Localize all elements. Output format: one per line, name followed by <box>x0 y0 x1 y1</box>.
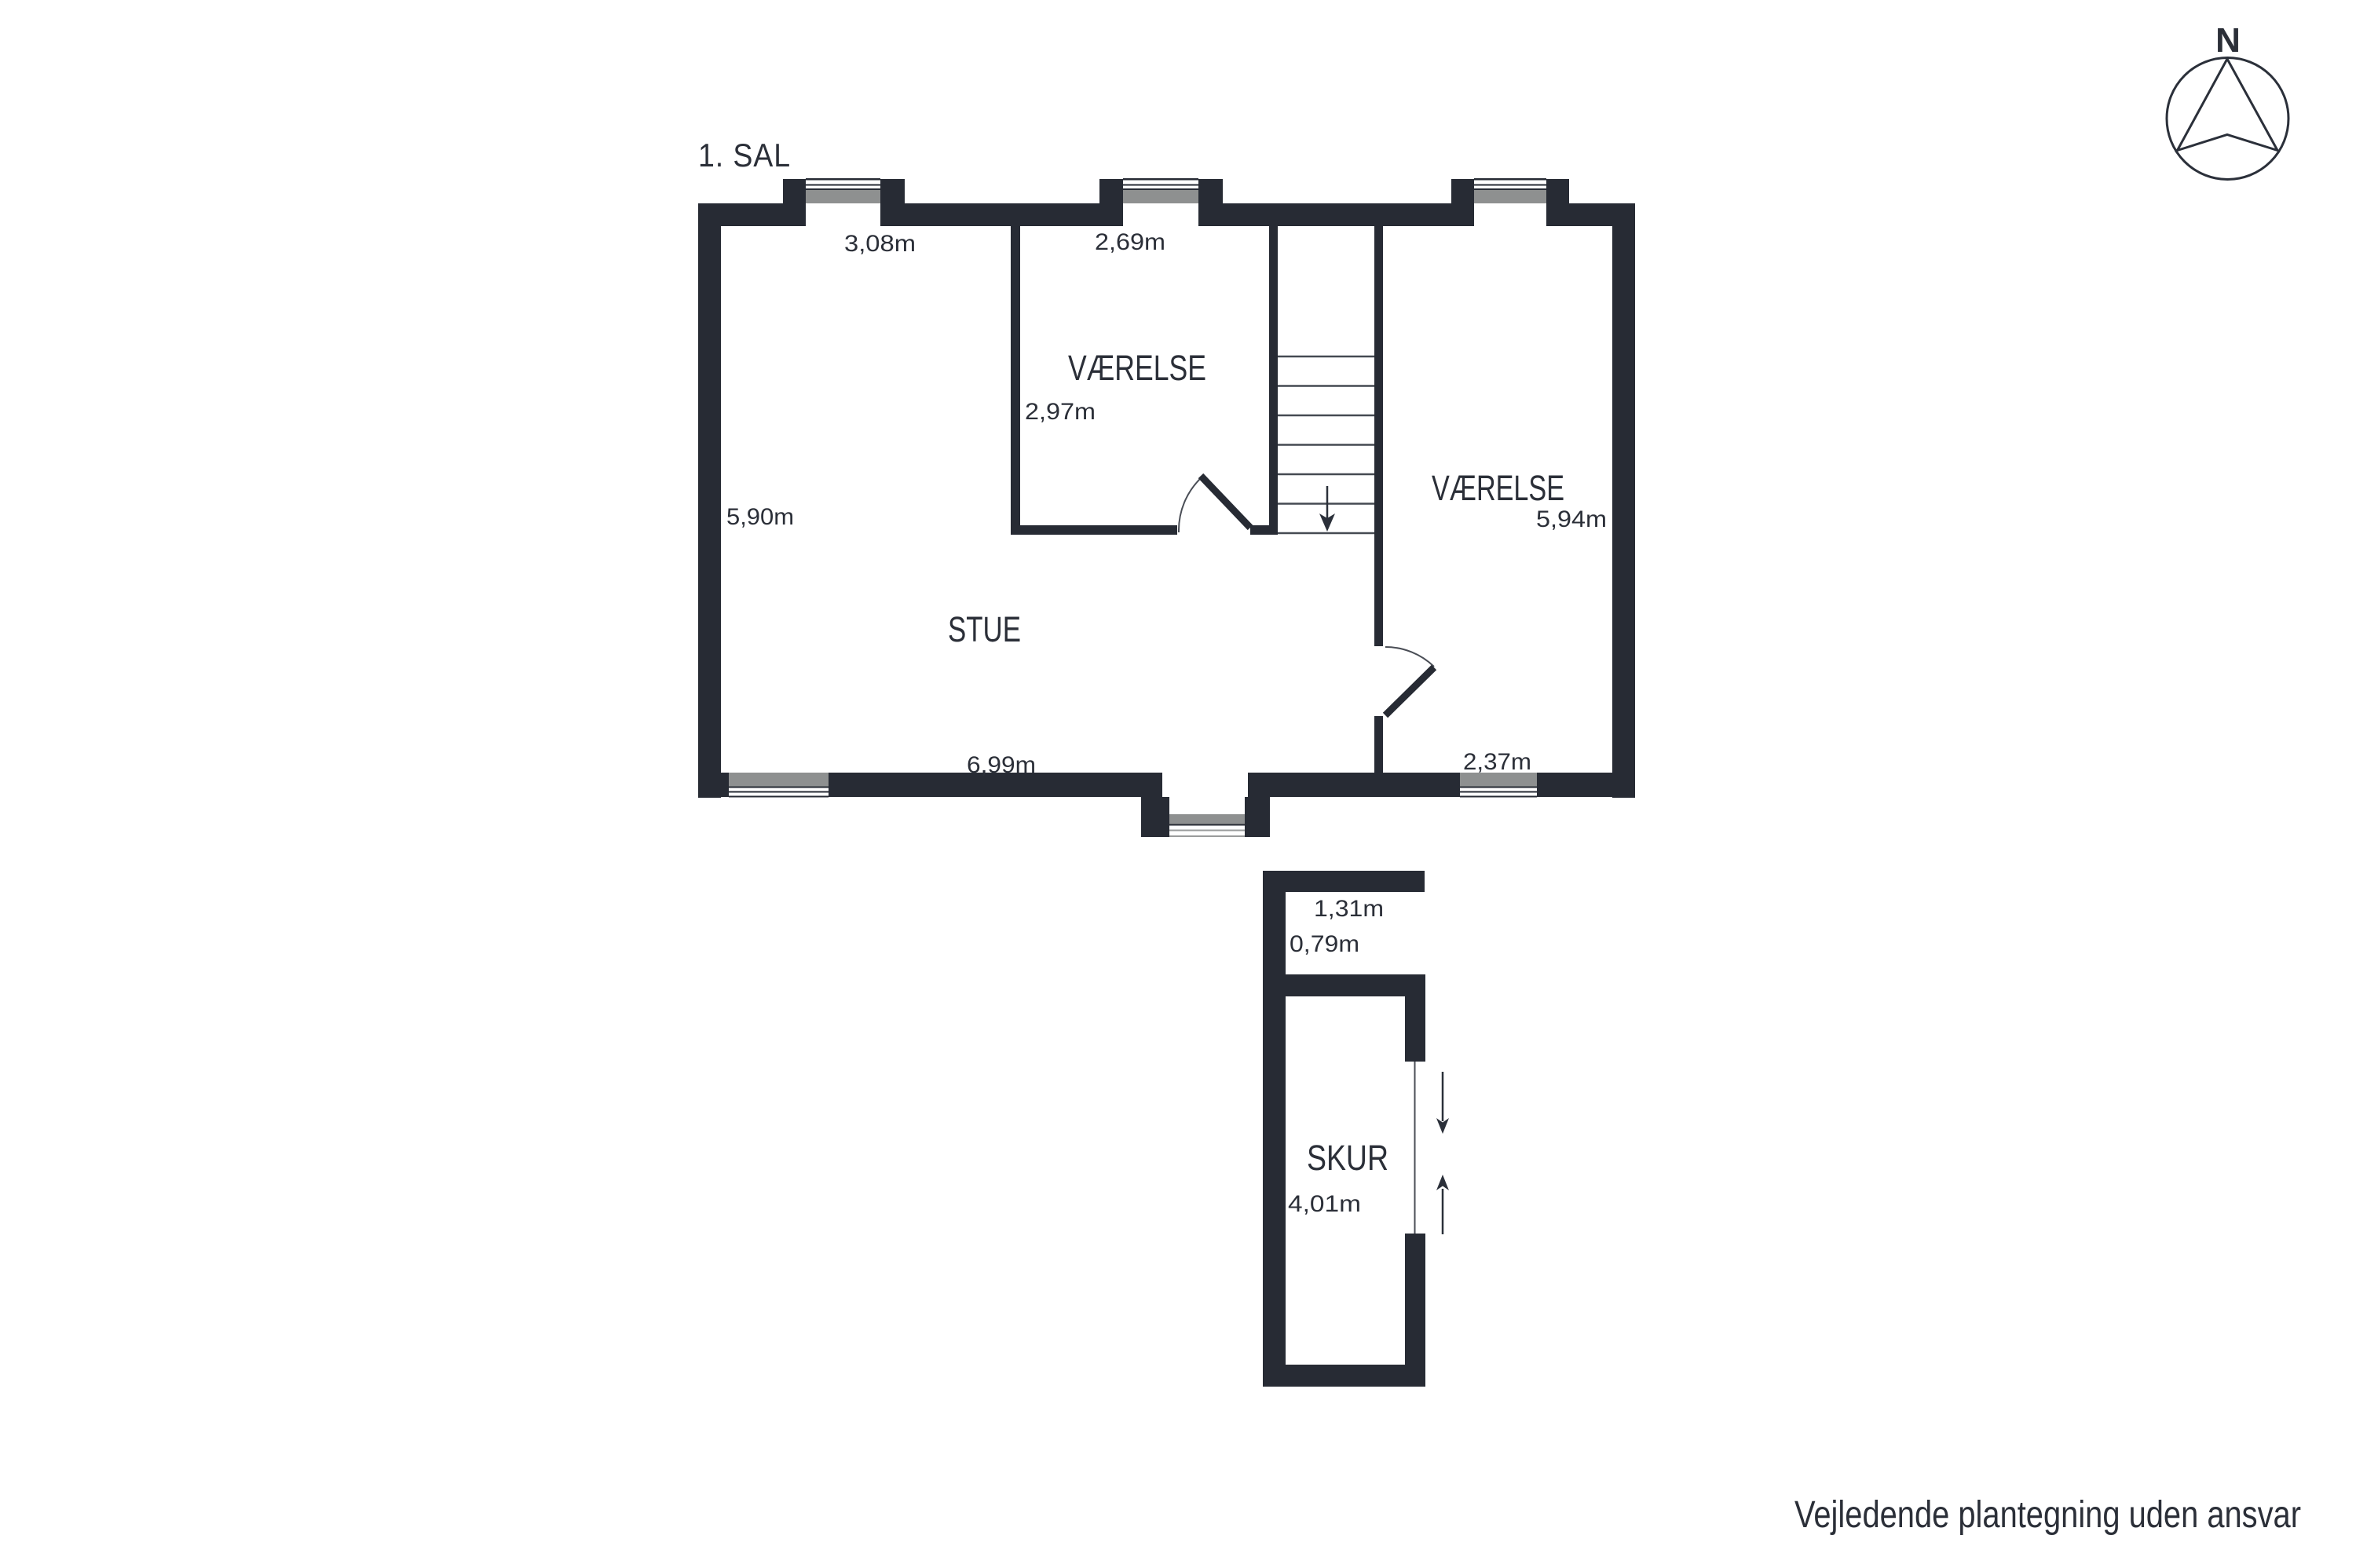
svg-text:6,99m: 6,99m <box>967 752 1036 778</box>
svg-text:1,31m: 1,31m <box>1314 896 1384 922</box>
svg-text:SKUR: SKUR <box>1307 1138 1388 1178</box>
svg-text:Vejledende plantegning uden an: Vejledende plantegning uden ansvar <box>1794 1494 2301 1536</box>
svg-text:5,94m: 5,94m <box>1536 506 1607 532</box>
svg-text:2,37m: 2,37m <box>1463 749 1531 775</box>
svg-text:4,01m: 4,01m <box>1288 1191 1361 1217</box>
svg-text:3,08m: 3,08m <box>844 231 916 257</box>
svg-text:2,97m: 2,97m <box>1025 399 1096 425</box>
svg-text:1. SAL: 1. SAL <box>698 137 791 174</box>
svg-text:5,90m: 5,90m <box>726 504 794 530</box>
svg-text:VÆRELSE: VÆRELSE <box>1068 348 1206 388</box>
svg-text:VÆRELSE: VÆRELSE <box>1432 468 1564 508</box>
svg-text:2,69m: 2,69m <box>1095 229 1165 255</box>
svg-text:STUE: STUE <box>948 609 1021 649</box>
svg-text:0,79m: 0,79m <box>1290 931 1359 957</box>
svg-text:N: N <box>2215 21 2241 60</box>
